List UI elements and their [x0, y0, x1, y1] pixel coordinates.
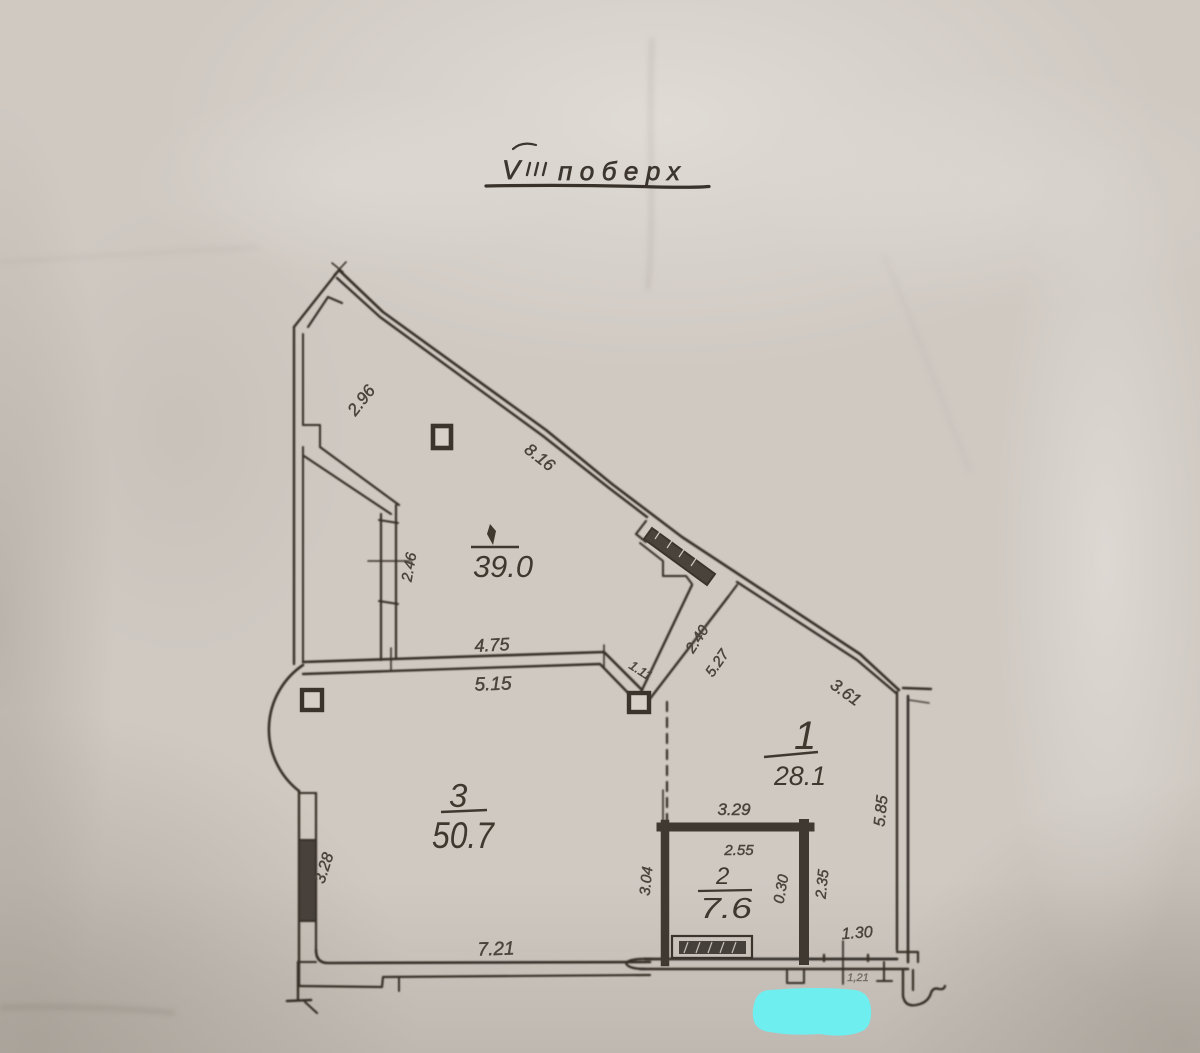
svg-text:3: 3 — [449, 777, 468, 814]
svg-text:5.85: 5.85 — [871, 795, 891, 828]
svg-text:7.6: 7.6 — [700, 893, 753, 925]
svg-text:1,21: 1,21 — [847, 972, 868, 984]
svg-text:поберх: поберх — [558, 156, 687, 186]
svg-text:5.15: 5.15 — [474, 673, 512, 695]
svg-text:7.21: 7.21 — [477, 938, 515, 960]
svg-text:3.29: 3.29 — [717, 800, 751, 819]
svg-text:50.7: 50.7 — [432, 815, 495, 856]
svg-text:2.55: 2.55 — [723, 842, 754, 859]
svg-text:28.1: 28.1 — [773, 761, 826, 791]
svg-text:4.75: 4.75 — [474, 634, 511, 656]
svg-text:2.35: 2.35 — [812, 868, 832, 900]
svg-text:2: 2 — [715, 863, 729, 890]
svg-text:3.04: 3.04 — [637, 866, 657, 897]
svg-text:1.30: 1.30 — [841, 924, 873, 943]
svg-text:39.0: 39.0 — [473, 549, 533, 584]
svg-text:V: V — [502, 155, 523, 185]
